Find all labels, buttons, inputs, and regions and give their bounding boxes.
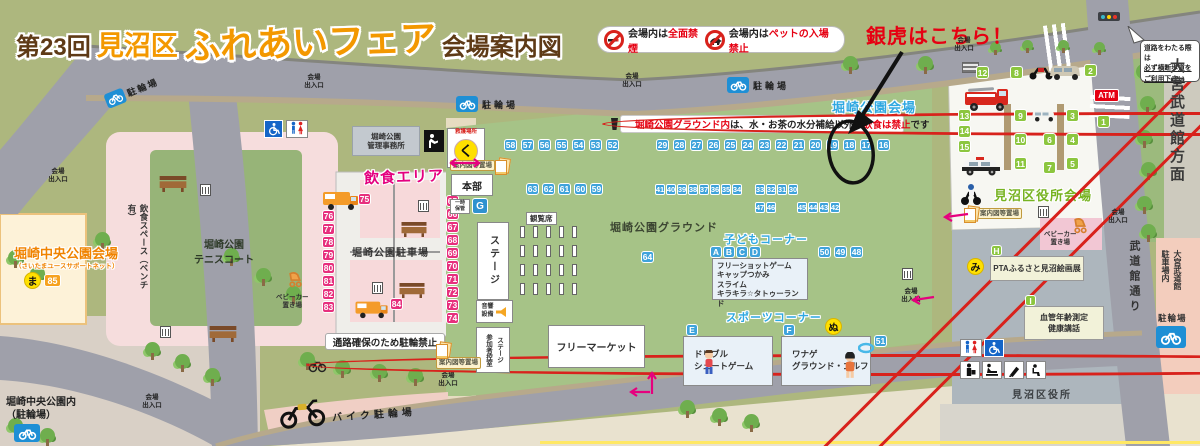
letter-badge-f: F bbox=[783, 324, 795, 336]
eating-space-label: 飲食スペース（ベンチ有） bbox=[126, 204, 150, 300]
marker-ma: ま bbox=[24, 272, 41, 289]
booth-badge: 71 bbox=[446, 273, 459, 285]
bicycle-parking-text: 駐輪場 bbox=[482, 98, 518, 111]
booth-badge: 38 bbox=[688, 184, 698, 195]
first-aid-label: 救護場所 bbox=[448, 129, 484, 137]
no-pets-text: 会場内はペットの入場禁止 bbox=[729, 25, 838, 55]
gate-l2: 出入口 bbox=[1100, 217, 1136, 225]
booth-badge: 56 bbox=[538, 139, 551, 151]
stage-box: ステージ bbox=[477, 222, 509, 300]
stroller-icon bbox=[287, 270, 304, 288]
gate-l1: 会場 bbox=[296, 74, 332, 82]
gate-label: 会場出入口 bbox=[134, 394, 170, 410]
booth-badge: 25 bbox=[724, 139, 737, 151]
tree-icon bbox=[1094, 42, 1105, 53]
booth-badge: 69 bbox=[446, 247, 459, 259]
papers-icon bbox=[495, 158, 508, 173]
booth-badge: 22 bbox=[775, 139, 788, 151]
bicycle-parking-label: 駐輪場 bbox=[456, 96, 518, 112]
booth-badge: 37 bbox=[699, 184, 709, 195]
parking-lot-label: 堀崎公園駐車場 bbox=[352, 244, 429, 259]
budokan-park-l1: 大宮武道館 bbox=[1172, 250, 1183, 290]
booth-badge: 24 bbox=[741, 139, 754, 151]
wheelchair-icon bbox=[264, 120, 283, 138]
gate-l2: 出入口 bbox=[946, 45, 982, 53]
booth-badge: 52 bbox=[606, 139, 619, 151]
drinking-fountain-icon bbox=[424, 130, 444, 152]
marker-nu: ぬ bbox=[825, 318, 842, 335]
booth-badge: 59 bbox=[590, 183, 603, 195]
traffic-signal-icon bbox=[1098, 12, 1120, 21]
path-bike-ban-text: 通路確保のため駐輪禁止 bbox=[333, 335, 438, 349]
booth-badge: 60 bbox=[574, 183, 587, 195]
booth-column-6-7: 67 bbox=[1043, 133, 1056, 174]
sound-equipment-box: 音響設備 bbox=[476, 300, 513, 323]
booth-badge: 45 bbox=[797, 202, 807, 213]
booth-badge: 34 bbox=[732, 184, 742, 195]
booth-column-65-74: 65666768697071727374 bbox=[446, 195, 459, 324]
sound-l1: 音響 bbox=[481, 304, 493, 311]
trash-icon bbox=[372, 282, 383, 294]
diaper-change-icon bbox=[982, 361, 1002, 379]
letter-badge-i: I bbox=[1025, 295, 1036, 306]
letter-badge-c: C bbox=[736, 246, 748, 258]
child-illustration bbox=[700, 350, 718, 376]
tennis-l2: テニスコート bbox=[194, 253, 254, 268]
gate-l2: 出入口 bbox=[296, 82, 332, 90]
tree-icon bbox=[1022, 40, 1033, 51]
office-l2: 管理事務所 bbox=[367, 141, 405, 150]
no-pets-icon bbox=[705, 30, 725, 50]
booth-badge: 64 bbox=[641, 251, 654, 263]
police-motorcycle-illustration bbox=[960, 182, 982, 206]
bicycle-parking-text: 駐輪場 bbox=[753, 79, 789, 92]
gate-l2: 出入口 bbox=[893, 296, 929, 304]
booth-badge: 11 bbox=[1014, 157, 1027, 170]
booth-12: 12 bbox=[976, 66, 989, 79]
pta-exhibit-box: PTAふるさと見沼絵画展 bbox=[990, 256, 1084, 281]
booth-badge: 82 bbox=[322, 288, 335, 300]
stroller-area-label: ベビーカー置き場 bbox=[1044, 231, 1077, 247]
fire-truck-illustration bbox=[964, 84, 1010, 112]
tennis-l1: 堀崎公園 bbox=[194, 238, 254, 253]
booth-badge: 75 bbox=[358, 193, 371, 205]
booth-badge: 47 bbox=[755, 202, 765, 213]
booth-badge: 61 bbox=[558, 183, 571, 195]
kids-item: フリーショットゲーム bbox=[717, 261, 803, 270]
booth-badge: 81 bbox=[322, 275, 335, 287]
booth-badge: 18 bbox=[843, 139, 856, 151]
map-stand: 案内図等置場 bbox=[964, 206, 1022, 221]
tree-icon bbox=[175, 354, 190, 369]
booth-badge: 27 bbox=[690, 139, 703, 151]
stroller-l1: ベビーカー bbox=[276, 294, 309, 302]
kids-item: キラキラ☆タトゥーランド bbox=[717, 289, 803, 308]
food-area-title: 飲食エリア bbox=[364, 165, 445, 189]
health-talk-box: 血管年齢測定健康講話 bbox=[1024, 306, 1104, 340]
booth-badge: 3 bbox=[1066, 109, 1079, 122]
gate-label: 会場出入口 bbox=[1100, 209, 1136, 225]
booth-badge: 4 bbox=[1066, 133, 1079, 146]
gate-label: 会場出入口 bbox=[946, 37, 982, 53]
ward-office-label: 見沼区役所 bbox=[1012, 386, 1072, 401]
no-pets-prefix: 会場内は bbox=[729, 29, 769, 40]
trash-icon bbox=[418, 200, 429, 212]
papers-icon bbox=[964, 206, 977, 221]
gate-l1: 会場 bbox=[134, 394, 170, 402]
booth-51: 51 bbox=[874, 335, 887, 347]
gintora-note: 銀虎はこちら！ bbox=[866, 20, 1013, 49]
booth-badge: 57 bbox=[521, 139, 534, 151]
booth-badge: 80 bbox=[322, 262, 335, 274]
booth-row-47-46: 4746 bbox=[755, 202, 776, 213]
booth-badge: 10 bbox=[1014, 133, 1027, 146]
booth-badge: 36 bbox=[710, 184, 720, 195]
map-stand-label: 案内図等置場 bbox=[977, 208, 1022, 220]
booth-badge: 16 bbox=[877, 139, 890, 151]
booth-1: 1 bbox=[1097, 115, 1110, 128]
central-note-l2: （駐輪場） bbox=[6, 409, 76, 422]
tree-icon bbox=[205, 368, 220, 383]
booth-badge: 62 bbox=[542, 183, 555, 195]
sound-label: 音響設備 bbox=[481, 304, 493, 318]
booth-column-76-83: 7677787980818283 bbox=[322, 210, 335, 313]
booth-badge: 20 bbox=[809, 139, 822, 151]
bubble-tail bbox=[1126, 26, 1146, 44]
bicycle-parking-label: 駐輪場 bbox=[727, 77, 789, 93]
booth-badge: 68 bbox=[446, 234, 459, 246]
park-admin-office: 堀崎公園管理事務所 bbox=[352, 126, 420, 156]
title-ward: 見沼区 bbox=[97, 24, 178, 63]
booth-84: 84 bbox=[390, 298, 403, 310]
top-notice-bar: 会場内は全面禁煙 会場内はペットの入場禁止 bbox=[597, 26, 845, 53]
path-bike-ban-notice: 通路確保のため駐輪禁止 bbox=[325, 333, 445, 350]
letter-badge-a: A bbox=[710, 246, 722, 258]
bicycle-icon bbox=[727, 77, 749, 93]
booth-badge: 55 bbox=[555, 139, 568, 151]
booth-badge: 84 bbox=[390, 298, 403, 310]
no-smoking-text: 会場内は全面禁煙 bbox=[628, 25, 701, 55]
booth-badge: 54 bbox=[572, 139, 585, 151]
temp-storage-label: 一時保管 bbox=[450, 199, 470, 214]
central-note-l1: 堀崎中央公園内 bbox=[6, 396, 76, 409]
booth-column-13-15: 131415 bbox=[958, 109, 971, 153]
booth-badge: 30 bbox=[788, 184, 798, 195]
map-stand: 案内図等置場 bbox=[450, 158, 508, 173]
stroller-area-label: ベビーカー置き場 bbox=[276, 294, 309, 310]
booth-badge: 42 bbox=[830, 202, 840, 213]
office-l1: 堀崎公園 bbox=[371, 132, 401, 141]
tree-icon bbox=[918, 56, 933, 71]
tree-icon bbox=[744, 414, 759, 429]
booth-badge: 79 bbox=[322, 249, 335, 261]
booth-75: 75 bbox=[358, 193, 371, 205]
headquarters-box: 本部 bbox=[451, 174, 493, 196]
gate-l1: 会場 bbox=[40, 168, 76, 176]
sports-corner-title: スポーツコーナー bbox=[726, 309, 822, 325]
stroller-l1: ベビーカー bbox=[1044, 231, 1077, 239]
map-stand-label: 案内図等置場 bbox=[450, 160, 495, 172]
nursing-room-icon bbox=[960, 361, 980, 379]
booth-85: 85 bbox=[44, 274, 61, 287]
booth-badge: 50 bbox=[818, 246, 831, 258]
booth-badge: 63 bbox=[526, 183, 539, 195]
letter-badge-b: B bbox=[723, 246, 735, 258]
toilet-icon bbox=[960, 339, 982, 357]
wheelchair-icon bbox=[984, 339, 1004, 357]
booth-64: 64 bbox=[641, 251, 654, 263]
tree-icon bbox=[256, 268, 271, 283]
temp-storage: 一時保管 G bbox=[450, 198, 488, 214]
booth-row-50-48: 504948 bbox=[818, 246, 863, 258]
tree-icon bbox=[843, 56, 858, 71]
gate-label: 会場出入口 bbox=[40, 168, 76, 184]
waiting-l1: ステージ bbox=[494, 337, 504, 363]
event-venue-map: 第23回 見沼区 ふれあいフェア 会場案内図 会場内は全面禁煙 会場内はペットの… bbox=[0, 0, 1200, 446]
booth-badge: 83 bbox=[322, 301, 335, 313]
kids-corner-box: フリーショットゲームキャップつかみスライムキラキラ☆タトゥーランド bbox=[712, 258, 808, 300]
booth-badge: 23 bbox=[758, 139, 771, 151]
booth-badge: 35 bbox=[721, 184, 731, 195]
trash-icon bbox=[902, 268, 913, 280]
no-smoking-icon bbox=[604, 30, 624, 50]
gate-l1: 会場 bbox=[614, 73, 650, 81]
tree-icon bbox=[1141, 224, 1156, 239]
booth-badge: 51 bbox=[874, 335, 887, 347]
letter-badge-e: E bbox=[686, 324, 698, 336]
stroller-l2: 置き場 bbox=[276, 302, 309, 310]
booth-badge: 6 bbox=[1043, 133, 1056, 146]
budokan-direction-label: 大宮武道館方面 bbox=[1166, 58, 1187, 223]
trash-icon bbox=[1038, 206, 1049, 218]
child-illustration bbox=[840, 352, 860, 380]
booth-badge: 31 bbox=[777, 184, 787, 195]
audience-seats bbox=[520, 226, 578, 296]
booth-badge: 40 bbox=[666, 184, 676, 195]
booth-badge: 28 bbox=[673, 139, 686, 151]
papers-icon bbox=[436, 342, 449, 357]
gate-l1: 会場 bbox=[893, 288, 929, 296]
kids-item: キャップつかみ bbox=[717, 270, 803, 279]
gate-l2: 出入口 bbox=[40, 176, 76, 184]
booth-badge: 32 bbox=[766, 184, 776, 195]
stroller-l2: 置き場 bbox=[1044, 239, 1077, 247]
tree-icon bbox=[1137, 196, 1152, 211]
tree-icon bbox=[1058, 40, 1069, 51]
booth-8: 8 bbox=[1010, 66, 1023, 79]
bench-icon bbox=[208, 326, 238, 342]
booth-badge: 5 bbox=[1066, 157, 1079, 170]
gate-l2: 出入口 bbox=[430, 380, 466, 388]
booth-badge: 21 bbox=[792, 139, 805, 151]
letter-badge-d: D bbox=[749, 246, 761, 258]
waiting-l2: 参加者控室 bbox=[483, 334, 493, 367]
ground-label: 堀崎公園グラウンド bbox=[610, 219, 718, 235]
booth-badge: 49 bbox=[834, 246, 847, 258]
sports-box-e: ドリブルシュートゲーム bbox=[683, 336, 773, 386]
bench-icon bbox=[158, 176, 188, 192]
booth-badge: 26 bbox=[707, 139, 720, 151]
booth-badge: 53 bbox=[589, 139, 602, 151]
megaphone-icon bbox=[496, 307, 508, 317]
booth-column-9-11: 91011 bbox=[1014, 109, 1027, 170]
booth-badge: 70 bbox=[446, 260, 459, 272]
booth-row-45-42: 45444342 bbox=[797, 202, 840, 213]
police-car-illustration bbox=[960, 156, 1002, 176]
car-illustration bbox=[1030, 108, 1058, 123]
bicycle-icon bbox=[1156, 326, 1186, 348]
bench-icon bbox=[400, 222, 428, 237]
venue-title-central-sub: （さいたまユースサポートネット） bbox=[15, 260, 118, 270]
food-truck-illustration bbox=[322, 188, 360, 212]
venue-title-park: 堀崎公園会場 bbox=[832, 97, 916, 116]
kneeling-person-icon bbox=[1026, 361, 1046, 379]
booth-badge: 74 bbox=[446, 312, 459, 324]
central-park-note: 堀崎中央公園内（駐輪場） bbox=[6, 396, 76, 422]
gate-l2: 出入口 bbox=[614, 81, 650, 89]
tree-icon bbox=[680, 400, 695, 415]
kids-item: スライム bbox=[717, 280, 803, 289]
budokan-park-l2: 駐車場内 bbox=[1160, 250, 1171, 290]
letter-badge-h: H bbox=[991, 245, 1002, 256]
gate-label: 会場出入口 bbox=[614, 73, 650, 89]
gate-l1: 会場 bbox=[1100, 209, 1136, 217]
booth-badge: 76 bbox=[322, 210, 335, 222]
booth-badge: 58 bbox=[504, 139, 517, 151]
tennis-court-label: 堀崎公園テニスコート bbox=[194, 238, 254, 268]
budokan-parking-label: 大宮武道館 駐車場内 bbox=[1160, 250, 1183, 290]
kids-letter-badges: A B C D bbox=[710, 246, 761, 258]
booth-badge: 44 bbox=[808, 202, 818, 213]
booth-badge: 7 bbox=[1043, 161, 1056, 174]
booth-badge: 43 bbox=[819, 202, 829, 213]
bicycle-icon bbox=[456, 96, 478, 112]
marker-mi: み bbox=[967, 258, 984, 275]
booth-row-41-34: 4140393837363534 bbox=[655, 184, 742, 195]
booth-badge: 29 bbox=[656, 139, 669, 151]
gate-label: 会場出入口 bbox=[893, 288, 929, 304]
toilet-icon bbox=[286, 120, 308, 138]
booth-badge: 77 bbox=[322, 223, 335, 235]
title-guide: 会場案内図 bbox=[442, 27, 562, 62]
booth-badge: 73 bbox=[446, 299, 459, 311]
storage-l2: 保管 bbox=[455, 206, 465, 212]
gate-l2: 出入口 bbox=[134, 402, 170, 410]
booth-row-58-52: 58575655545352 bbox=[504, 139, 619, 151]
trash-icon bbox=[200, 184, 211, 196]
pen-icon bbox=[1004, 361, 1024, 379]
booth-badge: 33 bbox=[755, 184, 765, 195]
booth-badge: 17 bbox=[860, 139, 873, 151]
stage-waiting-room: ステージ 参加者控室 bbox=[476, 327, 510, 373]
booth-badge: 9 bbox=[1014, 109, 1027, 122]
booth-badge: 46 bbox=[766, 202, 776, 213]
title-fair: ふれあいフェア bbox=[183, 10, 437, 71]
budokan-street-label: 武道館通り bbox=[1126, 240, 1142, 332]
sound-l2: 設備 bbox=[481, 312, 493, 319]
ring-toss-ring-icon bbox=[858, 342, 874, 354]
letter-badge-g: G bbox=[472, 198, 488, 214]
bicycle-icon bbox=[14, 424, 40, 442]
motorcycle-illustration bbox=[277, 392, 328, 430]
booth-row-63-59: 6362616059 bbox=[526, 183, 603, 195]
health-l2: 健康講話 bbox=[1048, 323, 1080, 334]
booth-row-29-16: 2928272625242322212019181716 bbox=[656, 139, 890, 151]
gate-label: 会場出入口 bbox=[296, 74, 332, 90]
booth-2: 2 bbox=[1084, 64, 1097, 77]
flea-market-box: フリーマーケット bbox=[548, 325, 645, 368]
tree-icon bbox=[145, 342, 160, 357]
audience-seats-label: 観覧席 bbox=[526, 212, 557, 225]
station-wagon-illustration bbox=[1048, 62, 1084, 82]
booth-badge: 14 bbox=[958, 125, 971, 138]
gate-l1: 会場 bbox=[946, 37, 982, 45]
atm-badge: ATM bbox=[1094, 89, 1119, 102]
bench-icon bbox=[398, 283, 426, 298]
booth-column-3-5: 345 bbox=[1066, 109, 1079, 170]
booth-badge: 78 bbox=[322, 236, 335, 248]
booth-badge: 15 bbox=[958, 140, 971, 153]
trash-icon bbox=[160, 326, 171, 338]
booth-badge: 72 bbox=[446, 286, 459, 298]
booth-row-33-30: 33323130 bbox=[755, 184, 798, 195]
page-title: 第23回 見沼区 ふれあいフェア 会場案内図 bbox=[16, 14, 562, 66]
booth-badge: 19 bbox=[826, 139, 839, 151]
booth-badge: 67 bbox=[446, 221, 459, 233]
booth-badge: 41 bbox=[655, 184, 665, 195]
tree-icon bbox=[712, 408, 727, 423]
map-stand: 案内図等置場 bbox=[436, 342, 481, 369]
kids-corner-title: 子どもコーナー bbox=[724, 231, 808, 247]
food-truck-illustration bbox=[354, 298, 390, 320]
bicycle-parking-text: 駐輪場 bbox=[1158, 312, 1187, 324]
booth-badge: 39 bbox=[677, 184, 687, 195]
tree-icon bbox=[1140, 96, 1155, 111]
no-smoking-prefix: 会場内は bbox=[628, 29, 668, 40]
title-edition: 第23回 bbox=[16, 27, 91, 62]
booth-badge: 48 bbox=[850, 246, 863, 258]
health-l1: 血管年齢測定 bbox=[1040, 312, 1088, 323]
tree-icon bbox=[40, 428, 55, 443]
